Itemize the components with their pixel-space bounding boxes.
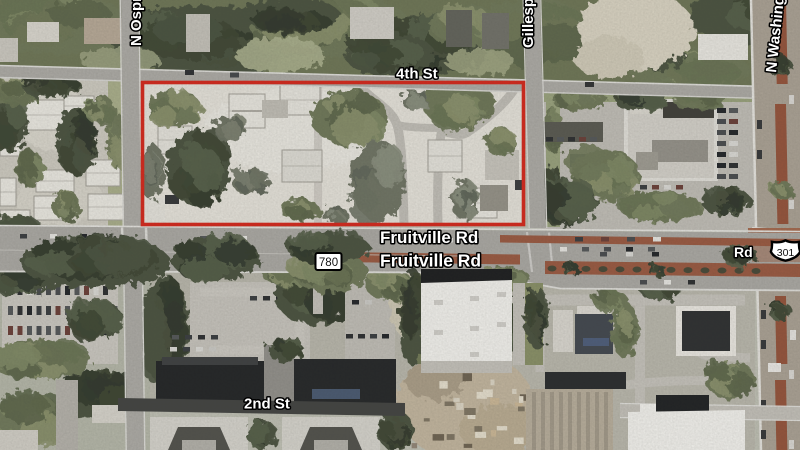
svg-text:Gillespie Ave: Gillespie Ave — [520, 0, 537, 48]
svg-text:N Osprey Ave: N Osprey Ave — [128, 0, 145, 46]
svg-text:780: 780 — [319, 257, 338, 269]
svg-text:4th St: 4th St — [396, 66, 438, 83]
svg-text:Fruitville Rd: Fruitville Rd — [380, 251, 481, 271]
svg-text:Fruitville Rd: Fruitville Rd — [380, 228, 478, 247]
svg-text:2nd St: 2nd St — [244, 396, 290, 413]
svg-text:Rd: Rd — [734, 244, 753, 260]
svg-text:301: 301 — [777, 247, 795, 259]
